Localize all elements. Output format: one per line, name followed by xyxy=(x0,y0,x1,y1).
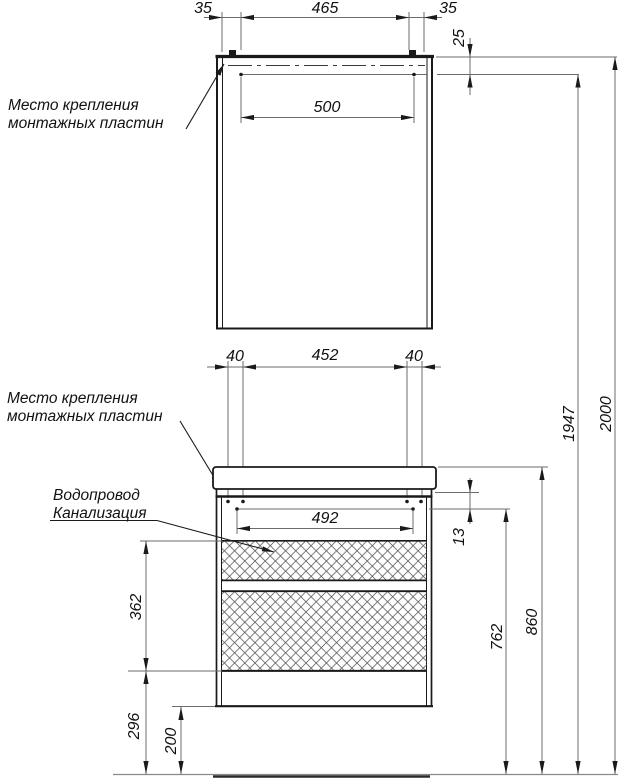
vanity-cabinet xyxy=(213,467,436,707)
mounting-hole xyxy=(419,500,423,504)
countertop xyxy=(213,467,436,489)
dim-25-label: 25 xyxy=(451,29,468,48)
dim-1947-label: 1947 xyxy=(561,405,578,442)
arrow xyxy=(143,671,148,684)
label-mounting-mid: Место крепления монтажных пластин xyxy=(7,390,220,487)
label-mounting-top: Место крепления монтажных пластин xyxy=(8,64,224,132)
arrow xyxy=(215,364,228,369)
dim-500-label: 500 xyxy=(314,99,341,116)
technical-drawing-page: 35 465 35 500 25 Место крепления монтажн… xyxy=(0,0,623,784)
drawer-1-hatch xyxy=(222,541,427,581)
dim-40-left: 40 xyxy=(226,348,244,365)
mounting-hole-left xyxy=(239,73,243,77)
mounting-hole xyxy=(235,507,239,511)
label-water: Водопровод xyxy=(53,487,140,504)
technical-drawing: 35 465 35 500 25 Место крепления монтажн… xyxy=(0,0,623,784)
dim-860-label: 860 xyxy=(524,609,541,636)
dim-right-heights: 762 860 1947 2000 xyxy=(438,57,618,774)
drawer-2-hatch xyxy=(222,591,427,671)
dim-492-label: 492 xyxy=(312,510,339,527)
mounting-hole xyxy=(405,500,409,504)
arrow xyxy=(467,44,472,57)
arrow xyxy=(503,761,508,774)
mounting-plate-right xyxy=(409,50,416,56)
label-mounting-mid-line1: Место крепления xyxy=(7,390,138,407)
arrow xyxy=(143,761,148,774)
arrow xyxy=(241,115,254,120)
dim-13-label: 13 xyxy=(451,528,468,546)
leader-line xyxy=(157,521,274,553)
mounting-hole xyxy=(411,507,415,511)
arrow xyxy=(612,57,617,70)
dim-296-label: 296 xyxy=(126,713,143,741)
arrow xyxy=(401,115,414,120)
dim-492: 492 xyxy=(237,510,413,534)
arrow xyxy=(394,364,407,369)
dim-35-right: 35 xyxy=(439,0,457,17)
arrow xyxy=(575,761,580,774)
dim-35-left: 35 xyxy=(194,0,212,17)
dim-362-296-200: 362 296 200 xyxy=(126,541,222,774)
arrow xyxy=(575,75,580,88)
dim-40-right: 40 xyxy=(405,348,423,365)
arrow xyxy=(243,364,256,369)
arrow xyxy=(539,467,544,480)
arrow xyxy=(612,761,617,774)
label-sewer: Канализация xyxy=(53,505,147,522)
mirror-cabinet xyxy=(216,50,435,330)
arrow xyxy=(467,75,472,88)
arrow xyxy=(422,364,435,369)
mounting-hole xyxy=(241,500,245,504)
dim-25: 25 xyxy=(436,29,617,95)
arrow xyxy=(241,15,254,20)
arrow xyxy=(237,526,250,531)
dim-2000-label: 2000 xyxy=(598,396,615,433)
arrow xyxy=(396,15,409,20)
dim-chain-top: 35 465 35 xyxy=(194,0,457,52)
arrow xyxy=(467,509,472,522)
arrow xyxy=(178,761,183,774)
dim-200-label: 200 xyxy=(163,728,180,756)
label-mounting-top-line2: монтажных пластин xyxy=(8,115,164,132)
arrow xyxy=(539,761,544,774)
dim-465: 465 xyxy=(312,0,339,17)
arrow xyxy=(400,526,413,531)
arrow xyxy=(503,509,508,522)
mounting-hole xyxy=(226,500,230,504)
arrow xyxy=(178,707,183,720)
dim-452: 452 xyxy=(312,347,339,364)
dim-362-label: 362 xyxy=(128,594,145,621)
label-mounting-mid-line2: монтажных пластин xyxy=(7,408,163,425)
label-mounting-top-line1: Место крепления xyxy=(8,97,139,114)
arrow xyxy=(143,541,148,554)
mounting-hole-right xyxy=(412,73,416,77)
arrow xyxy=(143,658,148,671)
arrow xyxy=(467,480,472,493)
arrow xyxy=(424,15,437,20)
mounting-plate-left xyxy=(229,50,236,56)
dim-500: 500 xyxy=(241,77,414,123)
floor xyxy=(113,775,618,777)
dim-13: 13 xyxy=(429,478,510,546)
dim-762-label: 762 xyxy=(489,624,506,651)
